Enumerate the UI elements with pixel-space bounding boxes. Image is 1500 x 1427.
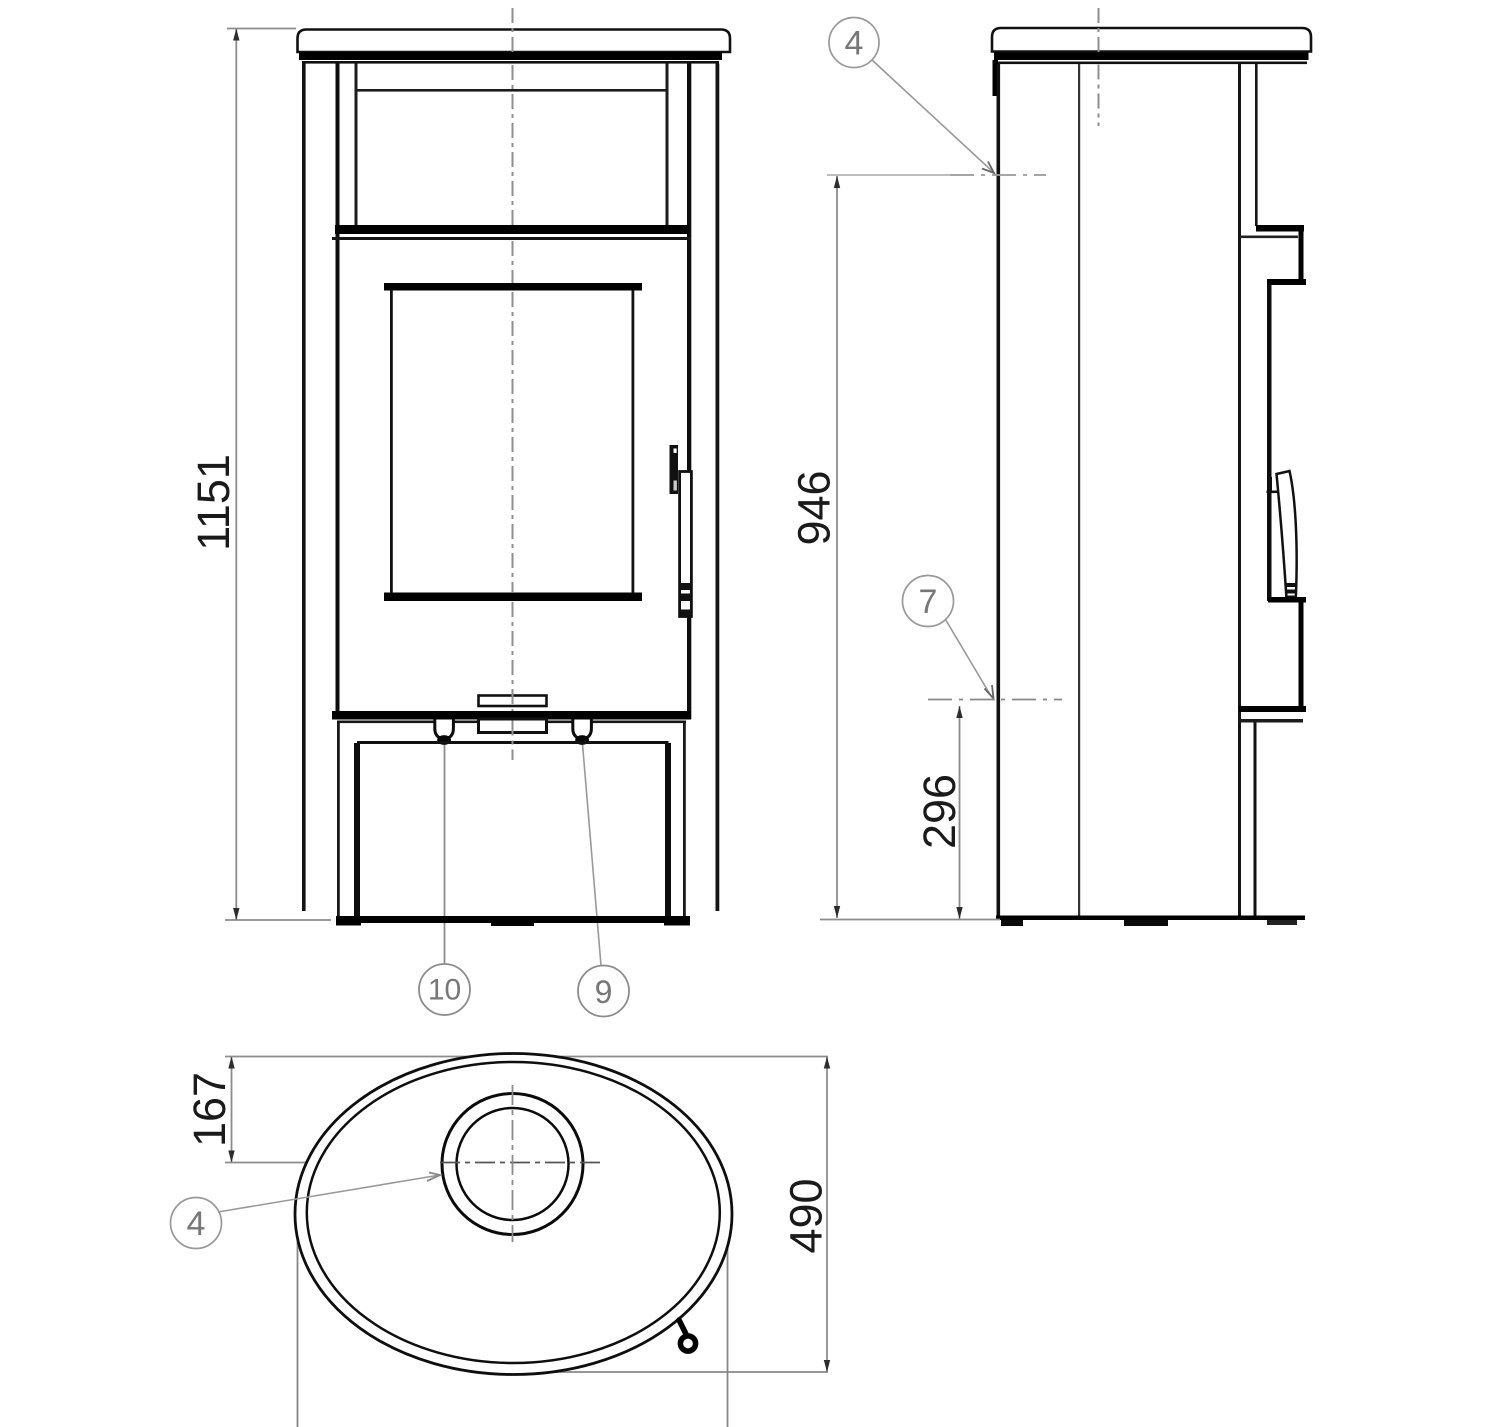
svg-text:167: 167 [184, 1072, 235, 1147]
svg-text:4: 4 [845, 25, 864, 63]
svg-text:10: 10 [428, 974, 461, 1007]
svg-text:296: 296 [914, 774, 965, 849]
svg-text:4: 4 [187, 1205, 206, 1243]
svg-text:7: 7 [919, 583, 938, 621]
svg-text:1151: 1151 [188, 454, 239, 551]
svg-text:946: 946 [789, 470, 840, 545]
svg-text:9: 9 [595, 974, 613, 1010]
svg-text:490: 490 [781, 1178, 832, 1253]
